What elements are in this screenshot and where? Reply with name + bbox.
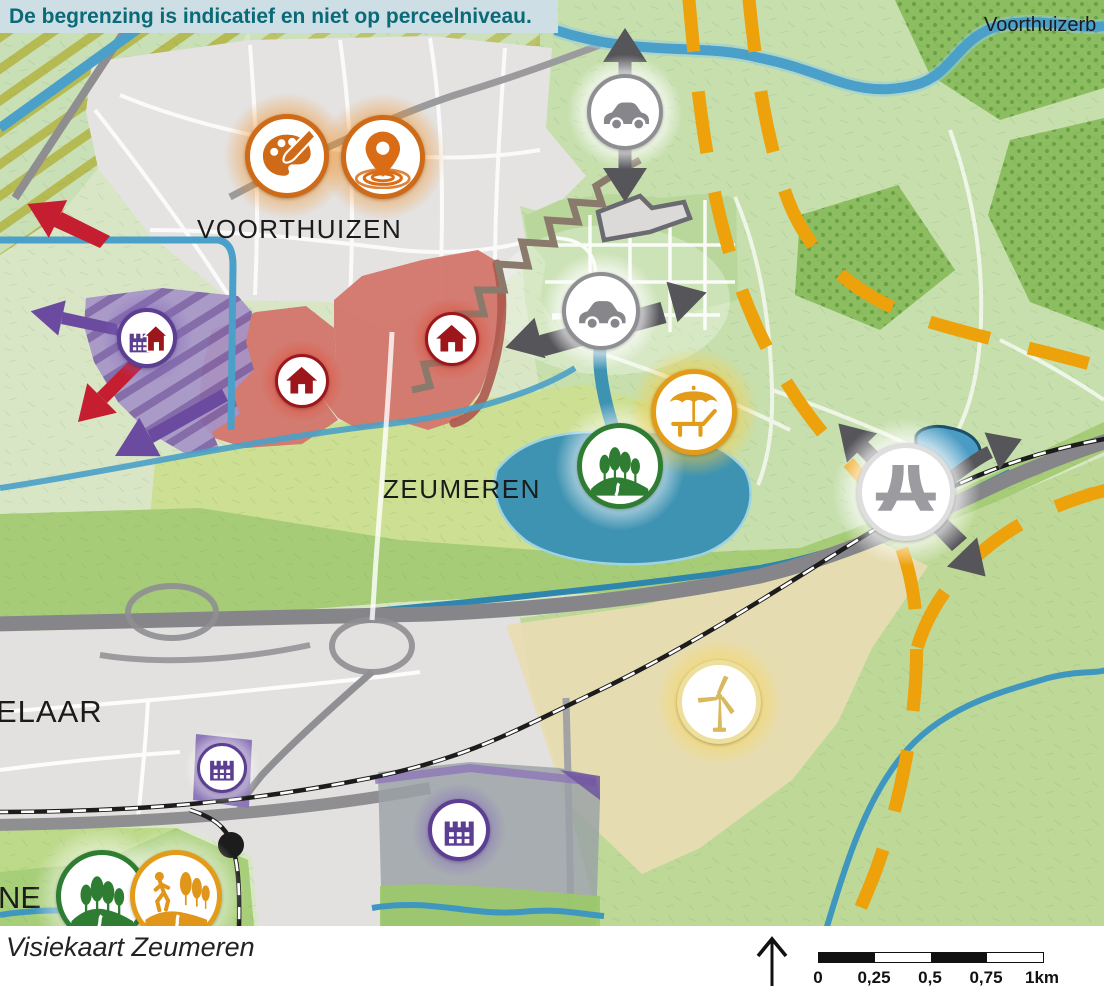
walking-icon-southwest bbox=[130, 850, 222, 926]
nature-icon-central-glyph bbox=[587, 433, 652, 498]
disclaimer-text: De begrenzing is indicatief en niet op p… bbox=[9, 5, 532, 28]
scale-segment bbox=[819, 953, 875, 962]
scale-bar-ticks: 00,250,50,751km bbox=[818, 968, 1044, 988]
map-caption: Visiekaart Zeumeren bbox=[6, 932, 255, 963]
housing-icon-east-glyph bbox=[431, 318, 472, 359]
railway-station-dot bbox=[218, 832, 244, 858]
map-label-voorthuizen: VOORTHUIZEN bbox=[197, 214, 402, 245]
wind-turbine-icon-glyph bbox=[687, 670, 751, 734]
disclaimer-banner: De begrenzing is indicatief en niet op p… bbox=[0, 0, 558, 33]
swim-location-icon-glyph bbox=[351, 125, 415, 189]
car-icon-north-glyph bbox=[596, 83, 654, 141]
swim-location-icon bbox=[341, 115, 425, 199]
scale-segment bbox=[875, 953, 931, 962]
zone-industry-south bbox=[372, 762, 604, 926]
palette-icon bbox=[245, 114, 329, 198]
car-icon-central-glyph bbox=[571, 281, 631, 341]
scale-tick-label: 0,5 bbox=[918, 968, 942, 988]
scale-segment bbox=[987, 953, 1043, 962]
wind-turbine-icon bbox=[677, 660, 761, 744]
scale-bar-segments bbox=[818, 952, 1044, 963]
walking-icon-southwest-glyph bbox=[141, 861, 212, 926]
industry-housing-icon-glyph bbox=[125, 316, 170, 361]
housing-icon-west bbox=[275, 354, 329, 408]
nature-icon-central bbox=[577, 423, 663, 509]
housing-icon-east bbox=[425, 312, 479, 366]
industry-icon-south-glyph bbox=[436, 807, 482, 853]
visiekaart-page: { "banner": { "text": "De begrenzing is … bbox=[0, 0, 1104, 990]
scale-tick-label: 1km bbox=[1025, 968, 1059, 988]
motorway-icon bbox=[857, 443, 955, 541]
map-label-ne: NE bbox=[0, 880, 41, 916]
map-label-zeumeren: ZEUMEREN bbox=[383, 474, 541, 505]
scale-segment bbox=[931, 953, 987, 962]
map-label-voorthuizerbos: Voorthuizerb bbox=[984, 14, 1096, 37]
recreation-icon-glyph bbox=[661, 379, 726, 444]
map-canvas: VOORTHUIZENZEUMERENELAARNEVoorthuizerb bbox=[0, 0, 1104, 926]
industry-icon-south bbox=[428, 799, 490, 861]
nature-icon-southwest-glyph bbox=[67, 861, 138, 926]
industry-housing-icon bbox=[117, 308, 177, 368]
car-icon-central bbox=[562, 272, 640, 350]
north-arrow-icon bbox=[750, 932, 794, 990]
recreation-icon bbox=[651, 369, 737, 455]
map-label-elaar: ELAAR bbox=[0, 694, 103, 730]
scale-tick-label: 0 bbox=[813, 968, 822, 988]
scale-tick-label: 0,75 bbox=[969, 968, 1002, 988]
scale-tick-label: 0,25 bbox=[857, 968, 890, 988]
industry-icon-west-glyph bbox=[203, 749, 241, 787]
industry-icon-west bbox=[197, 743, 247, 793]
motorway-icon-glyph bbox=[868, 454, 944, 530]
car-icon-north bbox=[587, 74, 663, 150]
scale-bar: 00,250,50,751km bbox=[818, 952, 1044, 988]
housing-icon-west-glyph bbox=[281, 360, 322, 401]
palette-icon-glyph bbox=[255, 124, 319, 188]
map-footer: Visiekaart Zeumeren 00,250,50,751km bbox=[0, 926, 1104, 990]
